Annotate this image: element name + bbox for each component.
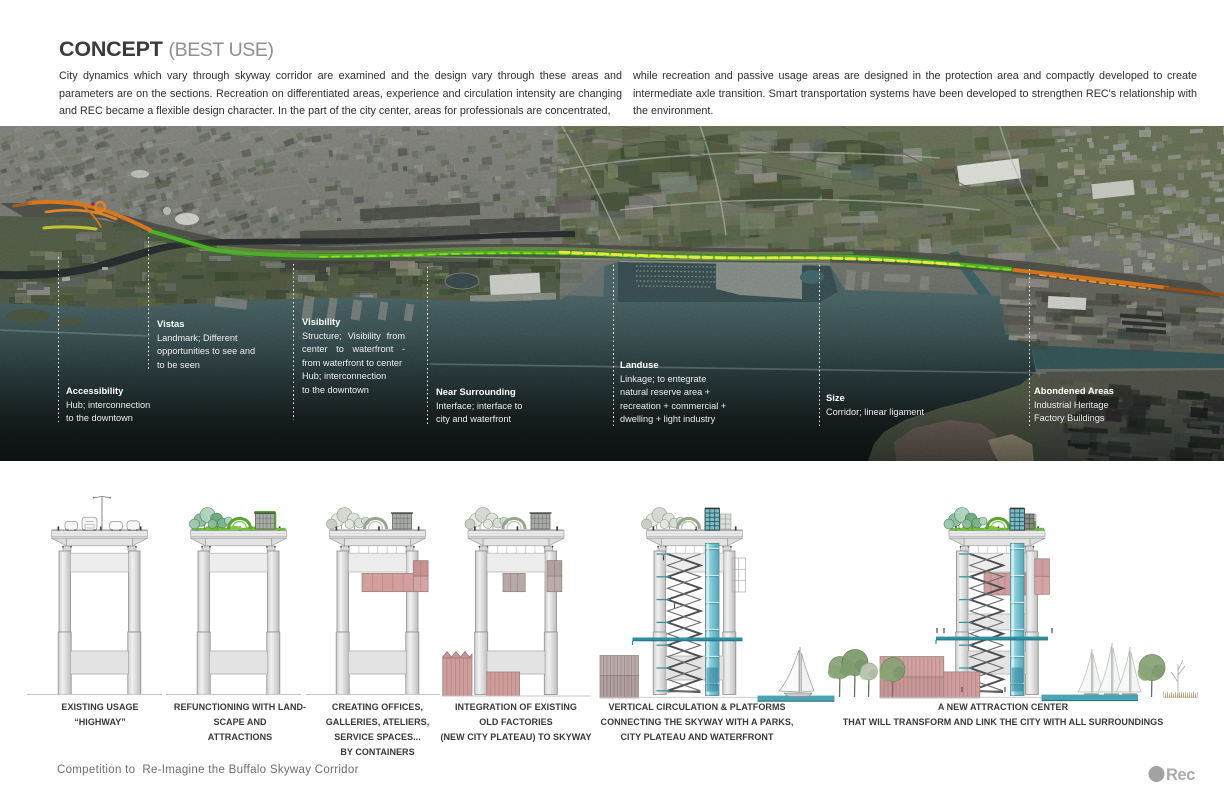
svg-text:Rec: Rec	[1166, 766, 1195, 784]
